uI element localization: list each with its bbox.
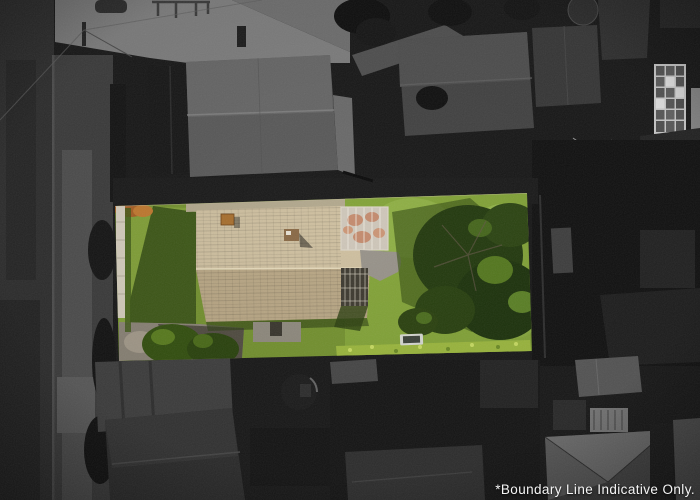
- aerial-photo: *Boundary Line Indicative Only.: [0, 0, 700, 500]
- film-grain-overlay: [0, 0, 700, 500]
- aerial-photo-canvas: [0, 0, 700, 500]
- boundary-disclaimer-text: *Boundary Line Indicative Only.: [495, 482, 695, 497]
